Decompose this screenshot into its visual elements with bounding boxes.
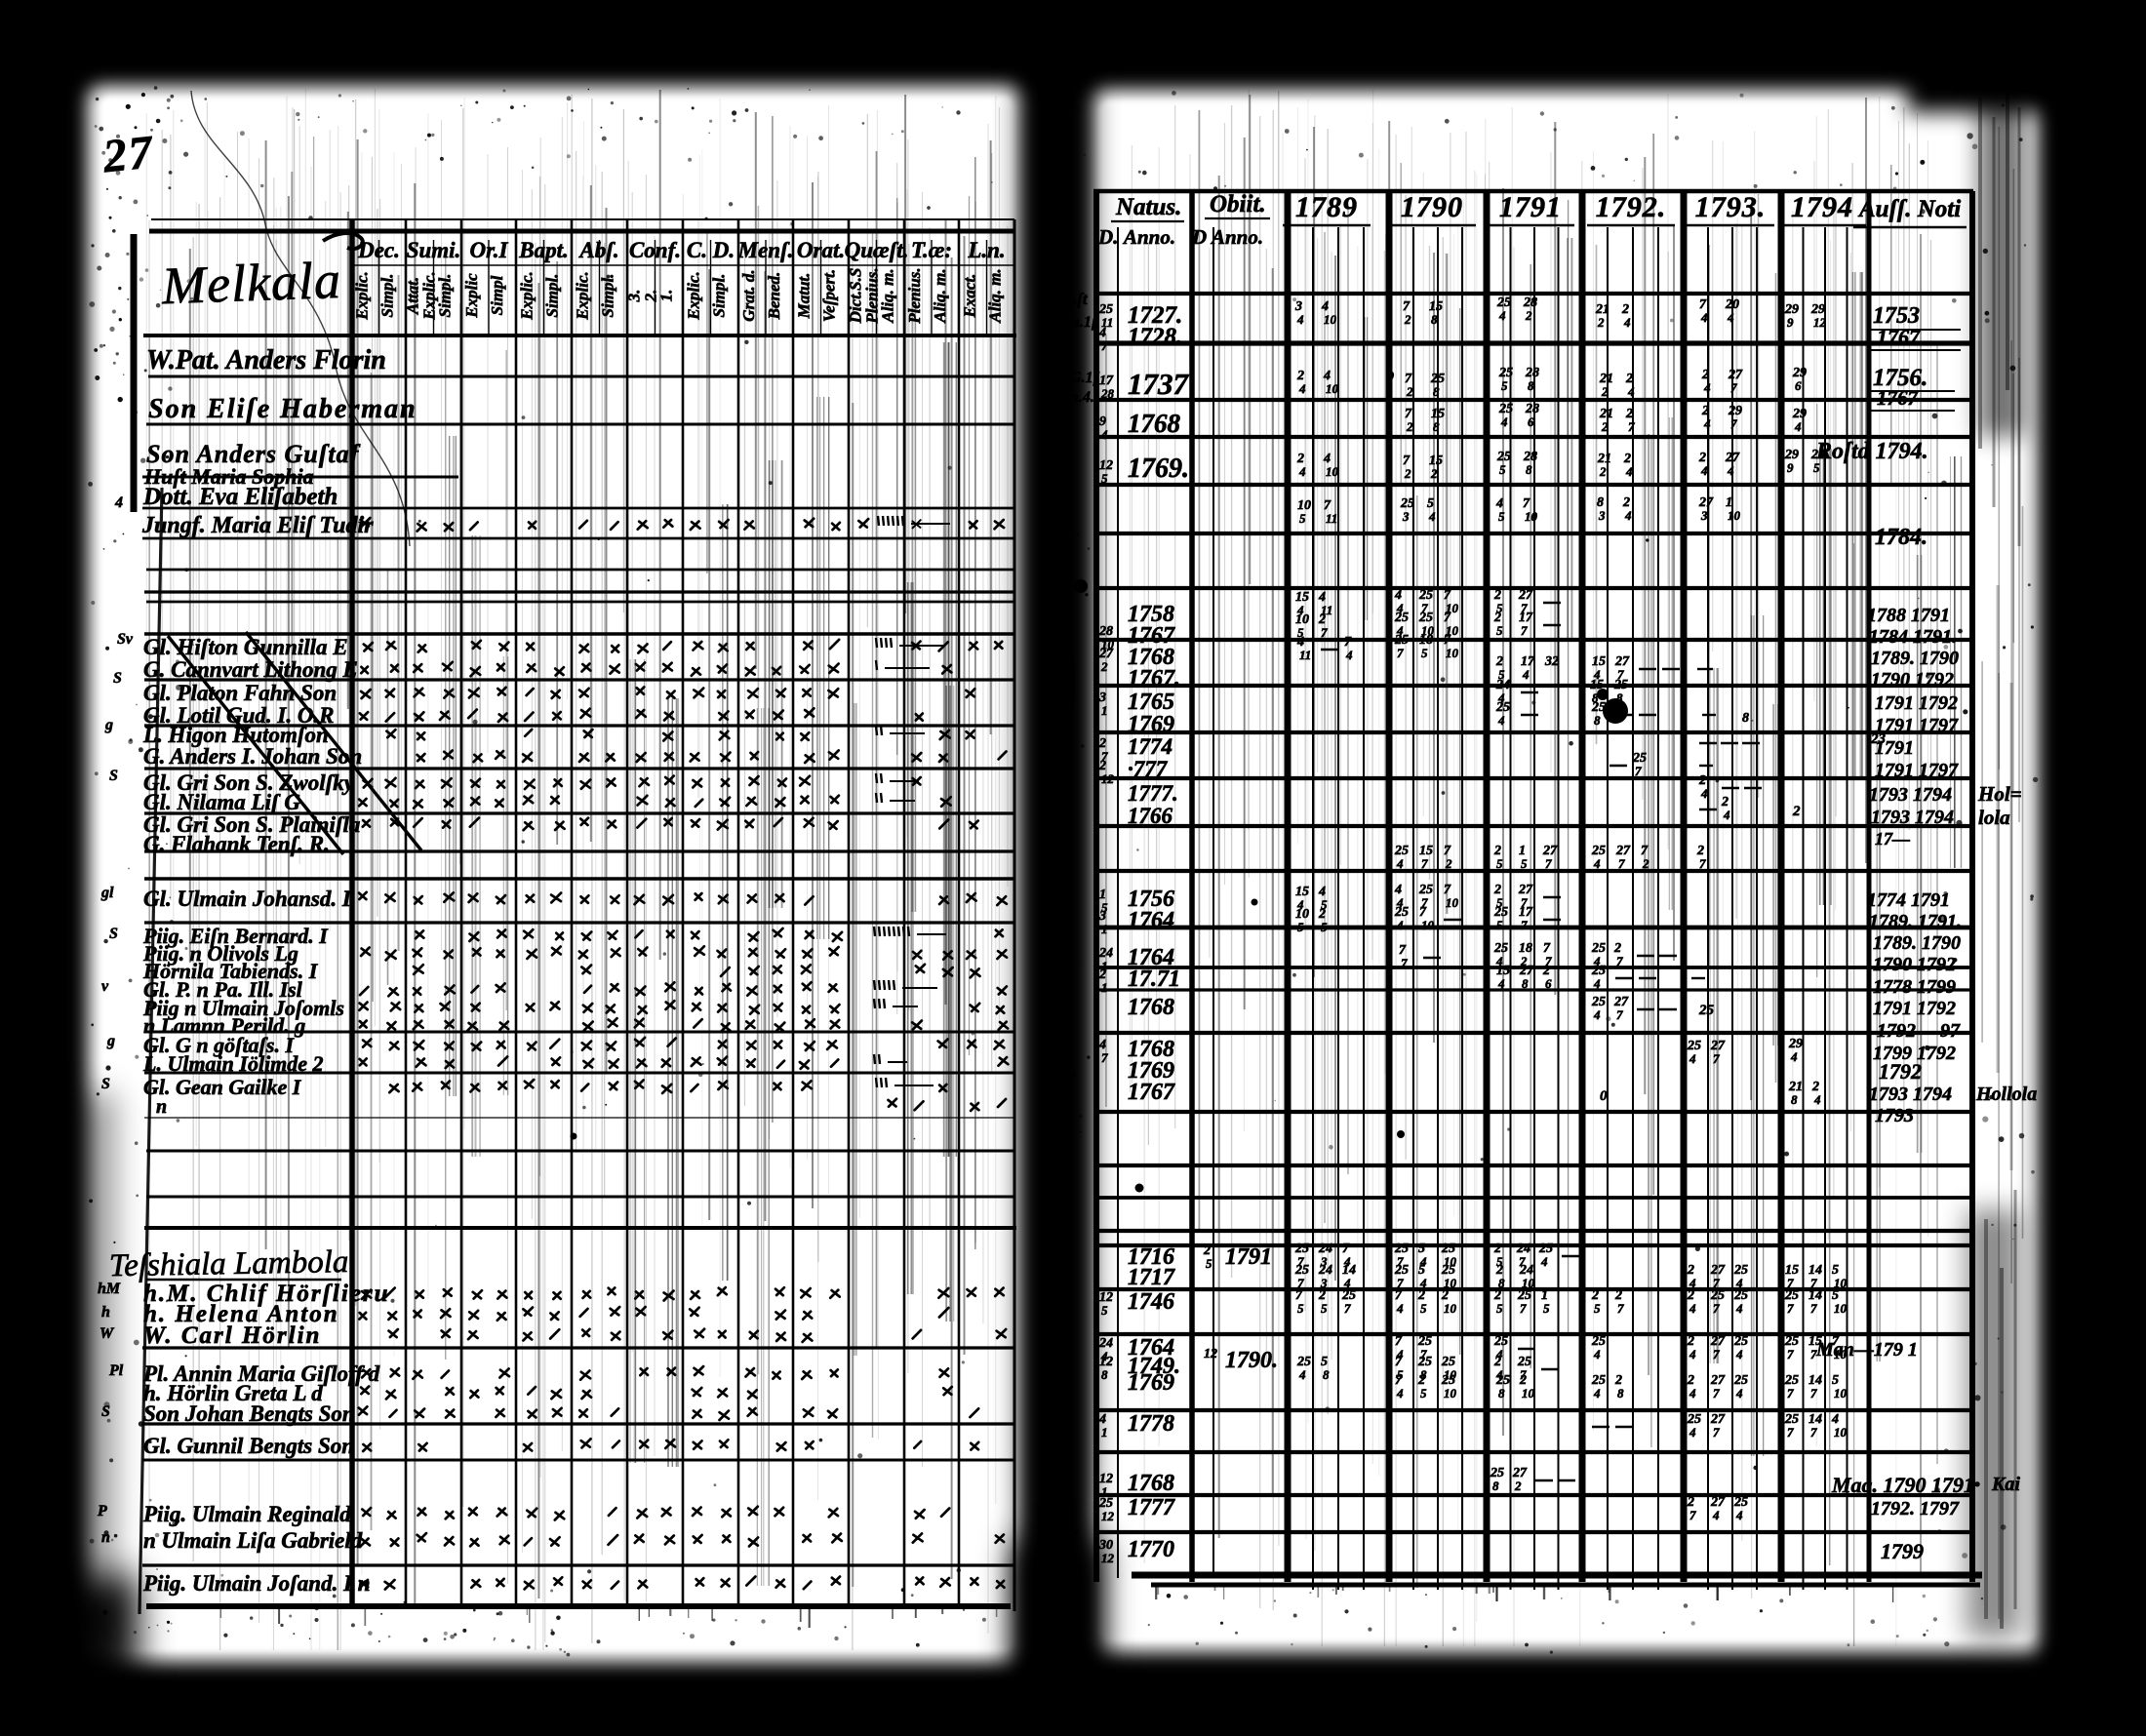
svg-text:4: 4 — [1396, 1386, 1404, 1401]
svg-text:g: g — [104, 717, 113, 733]
svg-text:Simpl.: Simpl. — [378, 274, 397, 318]
svg-text:Auſſ. Noti: Auſſ. Noti — [1857, 196, 1961, 222]
svg-text:7: 7 — [1520, 1301, 1527, 1316]
svg-text:S: S — [101, 1403, 110, 1420]
svg-text:8: 8 — [1616, 690, 1623, 705]
svg-text:5: 5 — [1496, 623, 1503, 638]
svg-text:1: 1 — [1101, 1425, 1108, 1440]
svg-text:5: 5 — [1496, 856, 1503, 871]
svg-text:Bapt.: Bapt. — [518, 238, 568, 262]
svg-text:1767: 1767 — [1128, 1080, 1175, 1105]
svg-text:1.: 1. — [657, 290, 676, 302]
svg-text:1769.: 1769. — [1128, 454, 1189, 484]
svg-text:10: 10 — [1444, 1386, 1457, 1401]
svg-text:10: 10 — [1446, 646, 1459, 660]
svg-text:Natus.: Natus. — [1115, 194, 1181, 220]
svg-text:1767: 1767 — [1877, 386, 1920, 410]
svg-text:D.: D. — [1097, 225, 1118, 249]
svg-text:1789. 1790: 1789. 1790 — [1871, 648, 1959, 669]
svg-text:gl: gl — [100, 885, 114, 901]
svg-text:10: 10 — [1326, 464, 1339, 479]
svg-text:5: 5 — [1521, 856, 1528, 871]
svg-text:3: 3 — [1598, 508, 1606, 523]
svg-text:7: 7 — [1344, 1301, 1351, 1316]
svg-text:S: S — [109, 926, 118, 942]
svg-text:1789. 1790: 1789. 1790 — [1873, 932, 1961, 954]
svg-text:32: 32 — [1544, 654, 1559, 669]
svg-text:W.Pat. Anders Florin: W.Pat. Anders Florin — [146, 345, 386, 375]
svg-text:1766: 1766 — [1128, 804, 1173, 828]
svg-text:Melkala: Melkala — [160, 251, 342, 315]
svg-text:1788 1791: 1788 1791 — [1867, 605, 1950, 626]
svg-text:W. Carl Hörlin: W. Carl Hörlin — [143, 1322, 321, 1349]
svg-text:1792: 1792 — [1879, 1059, 1922, 1084]
svg-text:Gl. Platon Fahn Son: Gl. Platon Fahn Son — [143, 681, 337, 705]
svg-text:Quæſt.: Quæſt. — [845, 238, 909, 262]
svg-text:Simpl.: Simpl. — [436, 274, 455, 318]
svg-text:4: 4 — [1298, 464, 1306, 479]
svg-text:lola: lola — [1978, 806, 2010, 829]
svg-text:1770: 1770 — [1128, 1537, 1174, 1562]
svg-text:7: 7 — [1787, 1301, 1794, 1316]
svg-text:n Ulmain Liſa Gabrield: n Ulmain Liſa Gabrield — [143, 1528, 363, 1553]
svg-text:2: 2 — [1599, 464, 1607, 479]
svg-text:Gl. Ulmain Johansd. I: Gl. Ulmain Johansd. I — [143, 887, 352, 911]
svg-text:4: 4 — [1735, 1386, 1743, 1401]
svg-text:2: 2 — [1445, 856, 1452, 871]
svg-text:L.n.: L.n. — [967, 238, 1005, 262]
svg-text:5: 5 — [1496, 1301, 1503, 1316]
svg-text:4: 4 — [1700, 310, 1708, 325]
svg-text:1793 1794: 1793 1794 — [1871, 807, 1954, 828]
svg-text:Explic.: Explic. — [574, 271, 592, 321]
svg-text:2: 2 — [1406, 384, 1413, 399]
svg-text:7: 7 — [1397, 646, 1404, 660]
svg-text:27: 27 — [99, 126, 156, 182]
svg-text:7: 7 — [1521, 623, 1528, 638]
svg-text:n: n — [156, 1096, 167, 1118]
svg-text:5: 5 — [1299, 511, 1306, 526]
svg-text:1778 1799: 1778 1799 — [1873, 976, 1956, 998]
svg-text:1768: 1768 — [1128, 409, 1181, 438]
svg-text:4: 4 — [1593, 1347, 1601, 1361]
svg-text:5: 5 — [1321, 1301, 1328, 1316]
svg-text:Matut.: Matut. — [795, 273, 814, 320]
svg-text:28: 28 — [1100, 386, 1115, 401]
svg-text:10: 10 — [1834, 1386, 1848, 1401]
svg-text:g: g — [106, 1033, 115, 1049]
svg-text:6: 6 — [1795, 378, 1802, 393]
svg-text:12: 12 — [1101, 1551, 1115, 1565]
svg-text:Pl: Pl — [108, 1362, 124, 1379]
svg-text:1792.: 1792. — [1596, 191, 1667, 223]
svg-text:10: 10 — [1834, 1301, 1848, 1316]
svg-text:T.æ:: T.æ: — [911, 238, 952, 262]
svg-text:10: 10 — [1728, 508, 1741, 523]
svg-text:4: 4 — [1498, 308, 1506, 323]
svg-text:1791 1797: 1791 1797 — [1875, 715, 1959, 736]
svg-text:12: 12 — [1101, 1509, 1115, 1523]
svg-text:7: 7 — [1787, 1425, 1794, 1440]
svg-text:.ſt: .ſt — [1073, 290, 1089, 308]
svg-text:7: 7 — [1545, 856, 1552, 871]
svg-text:Dott. Eva Eliſabeth: Dott. Eva Eliſabeth — [142, 484, 338, 510]
svg-text:8: 8 — [1522, 976, 1529, 991]
svg-text:7: 7 — [1787, 1347, 1794, 1361]
svg-text:7: 7 — [1699, 856, 1706, 871]
svg-text:8: 8 — [1323, 1367, 1330, 1382]
svg-text:4: 4 — [1689, 1386, 1696, 1401]
svg-text:1793: 1793 — [1875, 1105, 1914, 1126]
svg-text:7: 7 — [1401, 956, 1408, 970]
svg-text:4: 4 — [1712, 1508, 1720, 1522]
svg-text:5: 5 — [1101, 471, 1108, 486]
svg-text:1768: 1768 — [1128, 995, 1174, 1020]
svg-text:8: 8 — [1433, 384, 1440, 399]
svg-text:Kai: Kai — [1991, 1474, 2020, 1495]
svg-text:7: 7 — [1713, 1386, 1720, 1401]
svg-text:1: 1 — [1101, 980, 1108, 995]
svg-text:1791 1797: 1791 1797 — [1875, 760, 1959, 781]
svg-text:Piig. Ulmain Joſand. I n: Piig. Ulmain Joſand. I n — [142, 1571, 371, 1596]
svg-text:7: 7 — [1730, 380, 1737, 395]
svg-text:4: 4 — [1396, 1301, 1404, 1316]
svg-text:7: 7 — [1101, 1050, 1108, 1065]
svg-text:23: 23 — [1870, 731, 1887, 747]
svg-text:4: 4 — [1593, 976, 1601, 991]
svg-text:7: 7 — [1713, 1301, 1720, 1316]
svg-text:Gl. Nilama Liſ G: Gl. Nilama Liſ G — [143, 790, 300, 814]
svg-text:5: 5 — [1594, 1301, 1601, 1316]
svg-text:4: 4 — [1345, 648, 1353, 662]
svg-text:8: 8 — [1791, 1092, 1798, 1107]
svg-text:S: S — [109, 768, 118, 784]
svg-text:4: 4 — [1497, 976, 1505, 991]
svg-text:Explic.: Explic. — [685, 271, 703, 321]
svg-text:12: 12 — [1101, 771, 1115, 786]
svg-text:4: 4 — [1700, 786, 1708, 801]
svg-text:2: 2 — [1525, 308, 1532, 323]
svg-text:4: 4 — [1500, 414, 1508, 429]
svg-text:4: 4 — [1625, 464, 1633, 479]
svg-text:·777: ·777 — [1128, 757, 1169, 781]
svg-text:1764: 1764 — [1128, 908, 1174, 933]
svg-text:G. Anders I. Johan Son: G. Anders I. Johan Son — [143, 744, 362, 769]
svg-text:4: 4 — [1624, 508, 1632, 523]
svg-text:1790 1792: 1790 1792 — [1873, 954, 1956, 975]
svg-text:8: 8 — [1492, 1479, 1499, 1493]
svg-text:4: 4 — [1727, 310, 1734, 325]
svg-text:4: 4 — [1428, 509, 1436, 524]
svg-text:7: 7 — [1689, 1508, 1696, 1522]
svg-text:10: 10 — [1421, 918, 1435, 932]
svg-text:Dec.: Dec. — [357, 238, 400, 262]
svg-text:4: 4 — [1813, 1092, 1821, 1107]
svg-text:5: 5 — [1420, 1386, 1427, 1401]
svg-text:Bened.: Bened. — [765, 272, 783, 321]
svg-text:4: 4 — [1727, 463, 1734, 478]
svg-text:7: 7 — [1787, 1386, 1794, 1401]
svg-text:1: 1 — [1101, 703, 1108, 718]
svg-text:v: v — [101, 978, 109, 995]
svg-text:12: 12 — [1204, 1347, 1217, 1361]
svg-text:7: 7 — [1730, 416, 1737, 431]
svg-text:Gl. Hiſton Gunnilla E: Gl. Hiſton Gunnilla E — [143, 635, 348, 659]
svg-text:h: h — [101, 1304, 110, 1321]
svg-text:10: 10 — [1522, 1386, 1535, 1401]
svg-text:3: 3 — [1700, 508, 1708, 523]
svg-text:n.1ſ: n.1ſ — [1071, 314, 1098, 331]
svg-text:1799: 1799 — [1881, 1539, 1924, 1563]
svg-text:7: 7 — [1713, 1051, 1720, 1066]
svg-text:8: 8 — [1101, 1367, 1108, 1382]
svg-text:4: 4 — [1593, 954, 1601, 968]
svg-text:4: 4 — [1627, 384, 1635, 399]
svg-text:2: 2 — [1430, 466, 1438, 481]
svg-text:8: 8 — [1617, 1386, 1624, 1401]
svg-text:Aliq. m.: Aliq. m. — [931, 268, 949, 323]
svg-text:1789: 1789 — [1295, 191, 1358, 223]
svg-text:1774 1791: 1774 1791 — [1867, 889, 1950, 911]
svg-text:4: 4 — [1623, 315, 1631, 330]
svg-text:4: 4 — [1689, 1425, 1696, 1440]
svg-text:5: 5 — [1498, 509, 1505, 524]
svg-text:Gl. Gean Gailke I: Gl. Gean Gailke I — [143, 1075, 302, 1099]
svg-text:2: 2 — [1404, 312, 1411, 327]
svg-text:Man—179 1: Man—179 1 — [1815, 1339, 1918, 1361]
svg-text:1: 1 — [1101, 922, 1108, 936]
svg-text:7: 7 — [1810, 1301, 1817, 1316]
svg-text:Jungf. Maria Eliſ Tudir: Jungf. Maria Eliſ Tudir — [141, 513, 374, 538]
svg-text:5: 5 — [1501, 378, 1508, 393]
svg-text:4: 4 — [1396, 918, 1404, 932]
svg-text:1728.: 1728. — [1128, 324, 1182, 350]
svg-text:8: 8 — [1742, 711, 1749, 726]
svg-text:Anno.: Anno. — [1122, 225, 1175, 249]
svg-text:7: 7 — [1616, 1007, 1623, 1022]
svg-text:7: 7 — [1713, 1347, 1720, 1361]
svg-text:4: 4 — [1703, 380, 1711, 395]
svg-text:7: 7 — [1810, 1386, 1817, 1401]
svg-text:10: 10 — [1446, 895, 1459, 910]
svg-text:17.71: 17.71 — [1128, 967, 1180, 992]
svg-text:Aliq. m.: Aliq. m. — [986, 268, 1005, 323]
svg-text:1768: 1768 — [1128, 1471, 1174, 1496]
svg-text:Sv: Sv — [117, 631, 134, 648]
svg-text:C. D.: C. D. — [687, 238, 735, 262]
svg-text:4: 4 — [1735, 1347, 1743, 1361]
svg-text:Explic: Explic — [462, 273, 481, 319]
svg-text:4: 4 — [1298, 381, 1306, 396]
svg-text:1717: 1717 — [1128, 1265, 1175, 1290]
svg-text:1791: 1791 — [1225, 1244, 1272, 1270]
svg-text:Hol=: Hol= — [1977, 782, 2022, 806]
svg-text:1777: 1777 — [1128, 1495, 1175, 1520]
svg-text:5: 5 — [1321, 920, 1328, 934]
svg-text:2: 2 — [1597, 315, 1605, 330]
svg-text:Explic.: Explic. — [518, 271, 536, 321]
svg-text:Explic.: Explic. — [353, 271, 372, 321]
svg-text:1737: 1737 — [1128, 367, 1190, 401]
svg-text:1791 1792: 1791 1792 — [1875, 692, 1958, 714]
svg-text:Veſpert.: Veſpert. — [820, 269, 839, 322]
svg-text:1791 1792: 1791 1792 — [1873, 998, 1956, 1019]
svg-text:7: 7 — [1617, 1301, 1624, 1316]
svg-text:Obiit.: Obiit. — [1210, 191, 1266, 217]
svg-text:1790.: 1790. — [1225, 1348, 1278, 1373]
svg-text:5: 5 — [1496, 918, 1503, 932]
svg-text:11: 11 — [1326, 511, 1337, 526]
svg-text:Orat.: Orat. — [797, 238, 845, 262]
svg-text:1767: 1767 — [1877, 325, 1921, 349]
svg-text:1790: 1790 — [1401, 191, 1463, 223]
svg-text:4: 4 — [1593, 856, 1601, 871]
svg-text:10: 10 — [1326, 381, 1339, 396]
svg-text:17—: 17— — [1875, 829, 1910, 848]
svg-text:1791: 1791 — [1499, 191, 1562, 223]
svg-text:6: 6 — [1528, 414, 1534, 429]
svg-text:4: 4 — [1700, 463, 1708, 478]
svg-text:1792. 1797: 1792. 1797 — [1871, 1498, 1960, 1519]
svg-text:9: 9 — [1787, 460, 1794, 475]
svg-text:1789. 1791.: 1789. 1791. — [1869, 911, 1962, 932]
svg-text:4: 4 — [1396, 856, 1404, 871]
svg-text:G.1ſ: G.1ſ — [1070, 370, 1100, 386]
svg-text:2: 2 — [1601, 384, 1609, 399]
svg-text:4: 4 — [1540, 1254, 1548, 1269]
svg-text:4: 4 — [1100, 427, 1108, 442]
svg-text:P: P — [97, 1503, 107, 1519]
svg-text:Plenius.: Plenius. — [905, 267, 924, 324]
svg-text:2: 2 — [1792, 804, 1801, 819]
svg-text:n.4.: n.4. — [1070, 389, 1094, 406]
svg-text:2: 2 — [1601, 419, 1609, 434]
svg-text:10: 10 — [1834, 1425, 1848, 1440]
svg-text:2: 2 — [1514, 1479, 1522, 1493]
svg-text:8: 8 — [1433, 419, 1440, 434]
svg-text:1794: 1794 — [1791, 191, 1853, 223]
svg-text:6: 6 — [1545, 976, 1552, 991]
svg-text:10: 10 — [1525, 509, 1538, 524]
svg-text:7: 7 — [1628, 419, 1635, 434]
svg-text:Abſ.: Abſ. — [577, 238, 618, 262]
svg-text:10: 10 — [1444, 1301, 1457, 1316]
svg-text:Or.I: Or.I — [470, 238, 509, 262]
svg-text:7: 7 — [1321, 625, 1328, 640]
svg-text:4: 4 — [1794, 419, 1802, 434]
svg-text:4: 4 — [1689, 1051, 1696, 1066]
svg-text:1793 1794: 1793 1794 — [1869, 1084, 1952, 1105]
svg-text:1792 —97: 1792 —97 — [1877, 1020, 1961, 1042]
svg-text:1746: 1746 — [1128, 1289, 1174, 1315]
svg-text:5: 5 — [1206, 1256, 1212, 1271]
svg-text:0: 0 — [1600, 1088, 1608, 1104]
svg-text:W: W — [99, 1325, 115, 1342]
svg-text:Simpl.: Simpl. — [599, 274, 617, 318]
svg-text:7: 7 — [1810, 1425, 1817, 1440]
svg-text:2: 2 — [1642, 856, 1649, 871]
svg-text:Gl. Gunnil Bengts Son: Gl. Gunnil Bengts Son — [143, 1434, 354, 1458]
svg-text:Son Eliſe Haberman: Son Eliſe Haberman — [148, 394, 417, 424]
svg-text:8: 8 — [1431, 312, 1438, 327]
svg-text:n: n — [101, 1529, 110, 1546]
svg-text:1777.: 1777. — [1128, 781, 1178, 806]
svg-text:G. Cannvart Lithong E: G. Cannvart Lithong E — [143, 657, 358, 682]
svg-text:7: 7 — [1421, 856, 1428, 871]
svg-text:4: 4 — [1298, 1367, 1306, 1382]
svg-text:Anno.: Anno. — [1210, 225, 1263, 249]
svg-text:5: 5 — [1297, 1301, 1304, 1316]
svg-text:4: 4 — [1593, 1007, 1601, 1022]
svg-text:Son Johan Bengts Son: Son Johan Bengts Son — [143, 1401, 355, 1426]
svg-text:7: 7 — [1616, 954, 1623, 968]
svg-text:3: 3 — [1402, 509, 1410, 524]
svg-text:5: 5 — [1297, 920, 1304, 934]
svg-text:1784 1791.: 1784 1791. — [1869, 626, 1957, 648]
svg-text:12: 12 — [1813, 315, 1827, 330]
svg-text:1778: 1778 — [1128, 1411, 1174, 1437]
svg-text:4: 4 — [1735, 1508, 1743, 1522]
svg-text:4: 4 — [1593, 1386, 1601, 1401]
svg-text:Exact.: Exact. — [961, 274, 979, 319]
svg-text:S: S — [113, 670, 122, 687]
svg-text:Piig. Ulmain Reginald: Piig. Ulmain Reginald — [142, 1502, 351, 1526]
svg-text:4: 4 — [1296, 312, 1304, 327]
svg-text:1774: 1774 — [1128, 734, 1172, 759]
svg-text:7: 7 — [1521, 918, 1528, 932]
svg-text:25: 25 — [1698, 1003, 1715, 1018]
svg-text:2: 2 — [1404, 466, 1411, 481]
svg-text:2: 2 — [1100, 659, 1108, 674]
svg-text:5: 5 — [1543, 1301, 1550, 1316]
svg-text:5: 5 — [1813, 460, 1820, 475]
svg-text:7: 7 — [1713, 1425, 1720, 1440]
svg-text:7: 7 — [1618, 856, 1625, 871]
svg-text:Simpl.: Simpl. — [710, 274, 729, 318]
svg-text:8: 8 — [1526, 462, 1532, 477]
svg-text:9: 9 — [1787, 315, 1794, 330]
svg-text:1767.: 1767. — [1128, 666, 1180, 691]
svg-text:7: 7 — [1635, 764, 1642, 778]
svg-text:5: 5 — [1420, 1301, 1427, 1316]
svg-text:Simpl.: Simpl. — [543, 274, 562, 318]
svg-text:11: 11 — [1299, 648, 1311, 662]
svg-text:7: 7 — [1101, 338, 1108, 353]
svg-text:Menſ.: Menſ. — [737, 238, 794, 262]
svg-text:Conf.: Conf. — [629, 238, 681, 262]
svg-text:Simpl: Simpl — [488, 275, 506, 315]
svg-text:4: 4 — [1522, 667, 1530, 682]
svg-text:5: 5 — [1499, 462, 1506, 477]
svg-text:Roſtd 1794.: Roſtd 1794. — [1815, 439, 1928, 464]
svg-text:4: 4 — [1689, 1347, 1696, 1361]
svg-text:2: 2 — [1406, 419, 1413, 434]
svg-text:1793 1794: 1793 1794 — [1869, 784, 1952, 806]
svg-text:10: 10 — [1324, 312, 1337, 327]
svg-text:Sumi.: Sumi. — [407, 238, 461, 262]
svg-text:8: 8 — [1594, 713, 1601, 728]
svg-text:Hollola: Hollola — [1975, 1084, 2037, 1105]
svg-text:Teſshiala Lambola: Teſshiala Lambola — [109, 1244, 349, 1283]
svg-text:9: 9 — [1387, 370, 1394, 384]
svg-text:4: 4 — [1689, 1301, 1696, 1316]
svg-text:8: 8 — [1528, 378, 1534, 393]
svg-text:5: 5 — [1421, 646, 1428, 660]
svg-text:1769: 1769 — [1128, 1370, 1174, 1396]
svg-text:4: 4 — [1703, 416, 1711, 431]
svg-text:4: 4 — [1790, 1049, 1798, 1064]
svg-text:5: 5 — [1101, 1303, 1108, 1318]
